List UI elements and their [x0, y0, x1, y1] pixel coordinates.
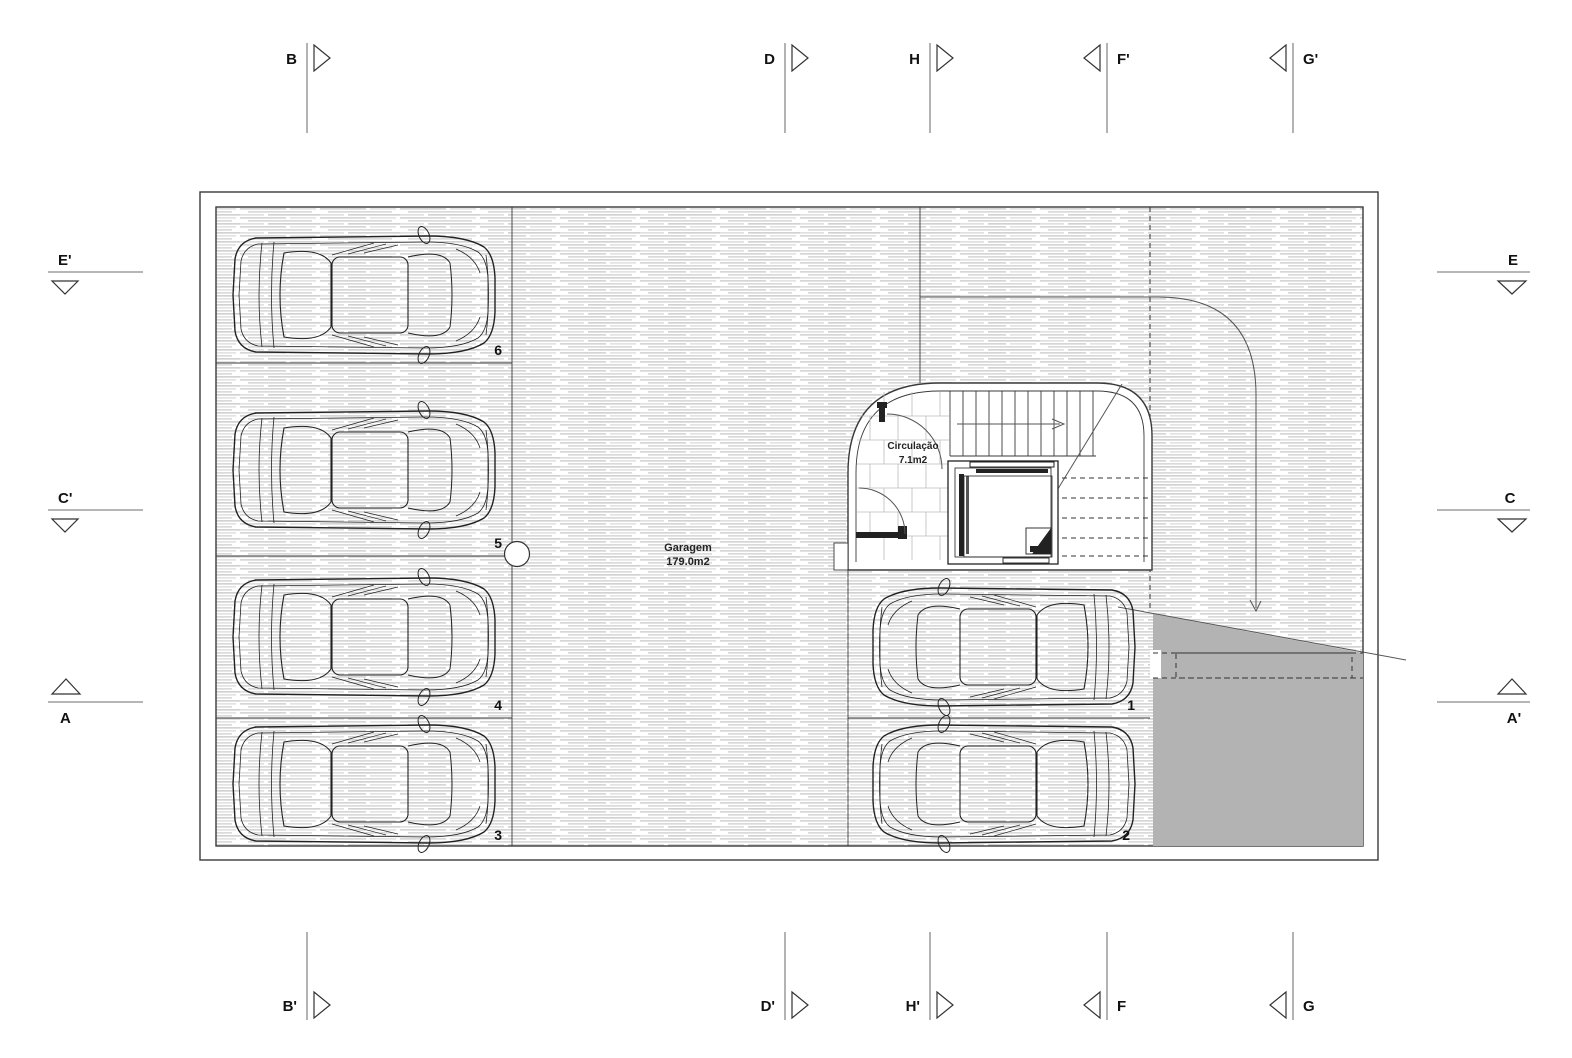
wall-jog [834, 543, 848, 570]
section-label: E [1508, 252, 1518, 269]
spot-number: 5 [494, 535, 502, 551]
spot-number: 2 [1122, 827, 1130, 843]
garage-plan: Circulação 7.1m2 6 5 4 3 1 2 [200, 192, 1406, 860]
spot-number: 3 [494, 827, 502, 843]
section-label: G [1303, 998, 1315, 1015]
spot-number: 1 [1127, 697, 1135, 713]
ramp-surface [1153, 614, 1363, 846]
circulation-room-name: Circulação [887, 441, 938, 452]
spot-number: 4 [494, 697, 502, 713]
section-label: G' [1303, 51, 1318, 68]
section-label: D [764, 51, 775, 68]
section-label: B [286, 51, 297, 68]
spot-number: 6 [494, 342, 502, 358]
section-label: H [909, 51, 920, 68]
section-label: A' [1507, 710, 1521, 727]
section-label: C' [58, 490, 72, 507]
ramp-notch [1150, 650, 1161, 678]
floor-plan-page: Circulação 7.1m2 6 5 4 3 1 2 [0, 0, 1572, 1058]
stair-core: Circulação 7.1m2 [834, 383, 1152, 570]
section-label: A [60, 710, 71, 727]
section-label: F [1117, 998, 1126, 1015]
section-label: E' [58, 252, 72, 269]
garage-room-name: Garagem [664, 542, 712, 554]
floor-plan-drawing: Circulação 7.1m2 6 5 4 3 1 2 [0, 0, 1572, 1058]
section-label: B' [283, 998, 297, 1015]
elevator [948, 461, 1058, 564]
section-label: H' [906, 998, 920, 1015]
section-label: F' [1117, 51, 1130, 68]
section-label: C [1505, 490, 1516, 507]
circulation-room-area: 7.1m2 [899, 455, 928, 466]
section-label: D' [761, 998, 775, 1015]
garage-room-area: 179.0m2 [666, 556, 709, 568]
column [505, 542, 530, 567]
